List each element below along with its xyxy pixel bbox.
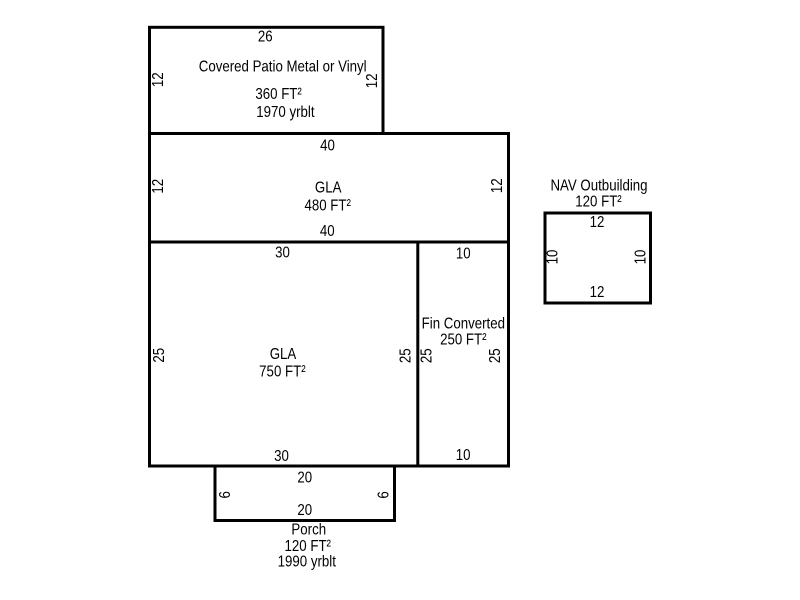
svg-text:12: 12: [590, 284, 605, 301]
svg-text:Porch: Porch: [291, 521, 326, 538]
svg-text:120 FT²: 120 FT²: [575, 193, 622, 210]
svg-text:NAV Outbuilding: NAV Outbuilding: [550, 177, 647, 194]
svg-text:40: 40: [320, 223, 335, 240]
svg-text:20: 20: [297, 469, 312, 486]
svg-text:480 FT²: 480 FT²: [304, 197, 351, 214]
svg-text:12: 12: [590, 214, 605, 231]
svg-text:30: 30: [275, 244, 290, 261]
svg-text:250 FT²: 250 FT²: [440, 331, 487, 348]
svg-text:30: 30: [274, 448, 289, 465]
svg-text:12: 12: [489, 178, 506, 193]
svg-text:10: 10: [544, 250, 561, 265]
svg-text:10: 10: [632, 250, 649, 265]
svg-text:750 FT²: 750 FT²: [259, 364, 306, 381]
svg-text:Covered Patio Metal or Vinyl: Covered Patio Metal or Vinyl: [199, 58, 367, 75]
svg-text:360 FT²: 360 FT²: [255, 86, 302, 103]
svg-text:1990 yrblt: 1990 yrblt: [278, 553, 336, 570]
svg-text:25: 25: [151, 348, 168, 363]
svg-text:40: 40: [320, 138, 335, 155]
svg-text:20: 20: [297, 502, 312, 519]
svg-text:25: 25: [487, 348, 504, 363]
svg-text:25: 25: [398, 348, 415, 363]
svg-text:12: 12: [150, 179, 167, 194]
svg-text:6: 6: [217, 491, 234, 498]
svg-text:25: 25: [419, 348, 436, 363]
svg-text:GLA: GLA: [315, 180, 342, 197]
svg-text:10: 10: [456, 447, 471, 464]
svg-text:12: 12: [150, 72, 167, 87]
svg-text:26: 26: [258, 28, 273, 45]
svg-text:6: 6: [375, 491, 392, 498]
svg-text:10: 10: [456, 245, 471, 262]
svg-text:Fin Converted: Fin Converted: [422, 316, 505, 333]
svg-text:GLA: GLA: [270, 346, 297, 363]
svg-text:1970 yrblt: 1970 yrblt: [256, 104, 314, 121]
